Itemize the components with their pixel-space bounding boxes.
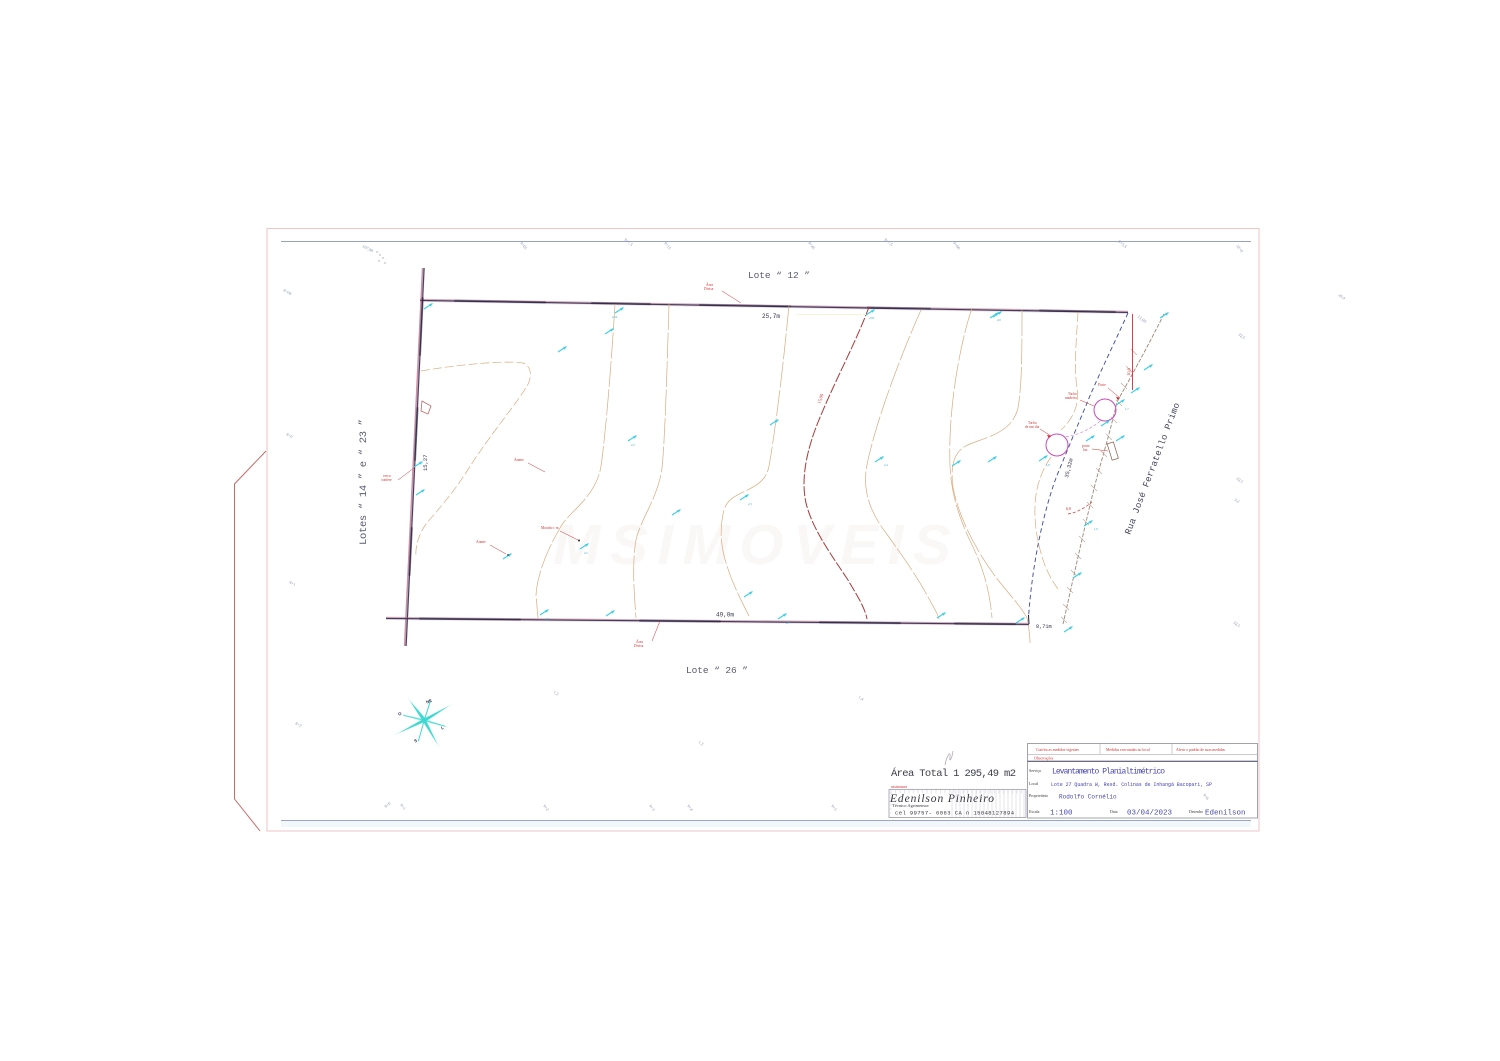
svg-text:Arame: Arame <box>476 540 486 544</box>
svg-text:confere: confere <box>381 478 392 482</box>
svg-text:de um dia: de um dia <box>1025 425 1040 429</box>
svg-text:Lote “ 26 ”: Lote “ 26 ” <box>686 665 748 676</box>
svg-text:25,7m: 25,7m <box>762 313 780 320</box>
svg-text:Escala: Escala <box>1029 809 1040 814</box>
svg-text:MSIMOVEIS: MSIMOVEIS <box>553 513 953 577</box>
svg-text:Lotes “ 14 ” e “ 23 ”: Lotes “ 14 ” e “ 23 ” <box>358 419 370 545</box>
svg-text:Local: Local <box>1029 781 1039 786</box>
svg-text:Observações: Observações <box>1034 757 1054 761</box>
svg-text:luz: luz <box>1083 448 1088 452</box>
svg-text:assinatura: assinatura <box>891 784 907 789</box>
svg-text:madeira: madeira <box>1065 396 1077 400</box>
svg-text:Aferir o padrão de suas medida: Aferir o padrão de suas medidas <box>1176 748 1226 752</box>
svg-text:Proprietário: Proprietário <box>1029 793 1048 798</box>
svg-text:15,27: 15,27 <box>422 454 429 471</box>
svg-text:03/04/2023: 03/04/2023 <box>1127 810 1173 818</box>
svg-text:Data: Data <box>1110 809 1118 814</box>
svg-text:Edenilson: Edenilson <box>1205 810 1246 818</box>
svg-text:Técnico Agrimensor: Técnico Agrimensor <box>892 803 929 808</box>
svg-text:Desenho: Desenho <box>1189 809 1203 814</box>
svg-text:8,71m: 8,71m <box>1036 624 1052 630</box>
svg-text:Lote 27 Quadra W, Resd. Colina: Lote 27 Quadra W, Resd. Colinas de Inhan… <box>1051 782 1212 788</box>
svg-text:Lote “ 12 ”: Lote “ 12 ” <box>748 270 810 281</box>
svg-text:Medidas executadas no local: Medidas executadas no local <box>1106 748 1150 752</box>
svg-text:Divisa: Divisa <box>704 287 714 291</box>
svg-text:Serviço: Serviço <box>1029 768 1041 773</box>
svg-text:cel 99757- 6063 CA n 15848127: cel 99757- 6063 CA n 15848127894 <box>895 810 1015 817</box>
svg-text:Levantamento Planialtimétrico: Levantamento Planialtimétrico <box>1052 768 1165 777</box>
svg-text:Área Total 1 295,49 m2: Área Total 1 295,49 m2 <box>891 766 1016 780</box>
svg-text:1:100: 1:100 <box>1050 810 1073 818</box>
svg-text:Mourão c m: Mourão c m <box>541 526 559 530</box>
svg-text:49,0m: 49,0m <box>716 612 734 619</box>
svg-text:Poste: Poste <box>1098 383 1106 387</box>
svg-text:Confira as medidas vigentes: Confira as medidas vigentes <box>1036 748 1079 752</box>
svg-text:Divisa: Divisa <box>634 644 644 648</box>
svg-text:Rodolfo Cornélio: Rodolfo Cornélio <box>1059 794 1117 801</box>
svg-text:Arame: Arame <box>514 458 524 462</box>
